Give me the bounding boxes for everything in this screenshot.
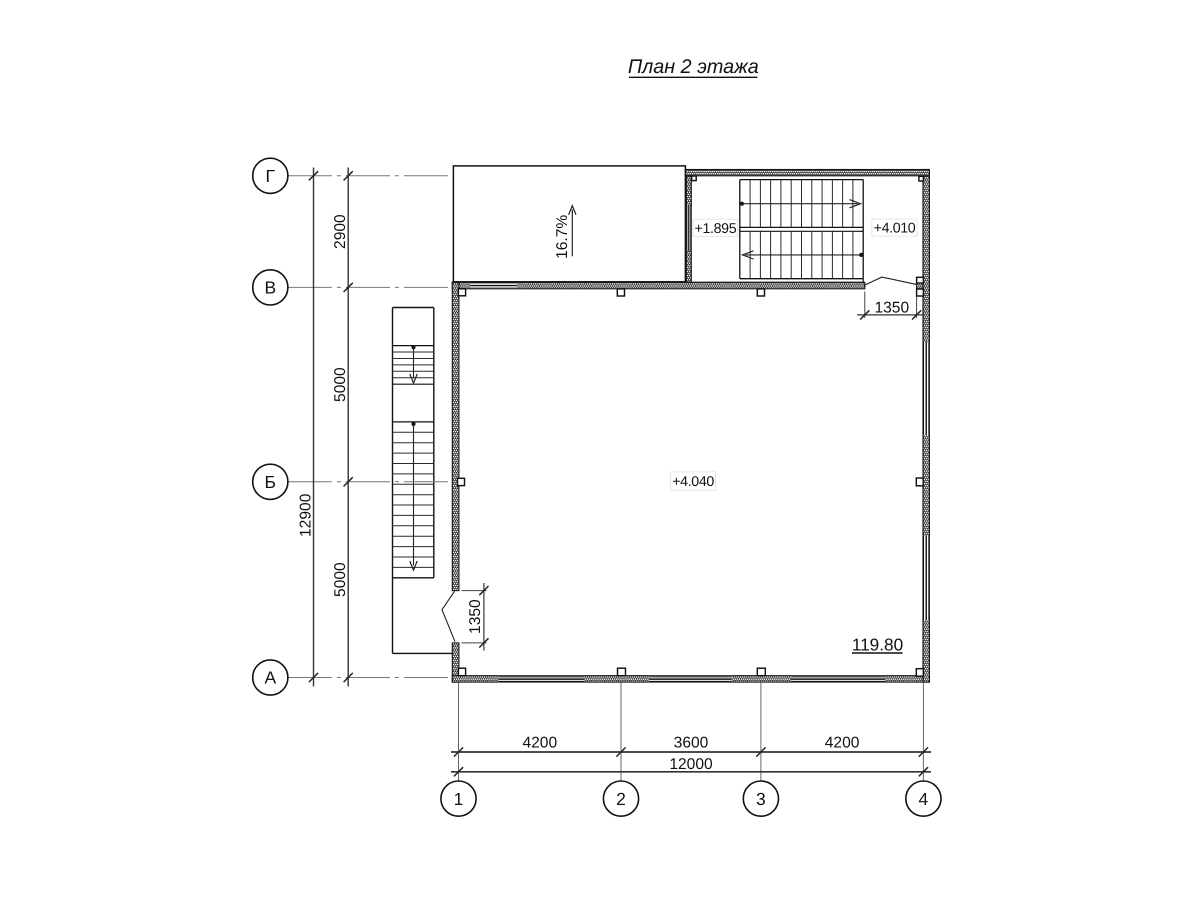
svg-text:Г: Г <box>266 166 276 186</box>
svg-text:16.7%: 16.7% <box>554 215 571 259</box>
svg-text:1350: 1350 <box>874 299 909 316</box>
svg-text:1350: 1350 <box>467 599 484 634</box>
svg-text:В: В <box>264 278 276 298</box>
svg-text:12900: 12900 <box>297 493 314 537</box>
svg-text:12000: 12000 <box>669 756 713 773</box>
svg-text:А: А <box>264 668 276 688</box>
svg-text:5000: 5000 <box>332 367 349 402</box>
svg-text:5000: 5000 <box>332 562 349 597</box>
svg-text:План 2 этажа: План 2 этажа <box>628 56 759 78</box>
svg-text:Б: Б <box>265 472 276 492</box>
svg-text:4: 4 <box>919 789 929 809</box>
svg-text:2900: 2900 <box>332 214 349 249</box>
svg-text:119.80: 119.80 <box>852 634 903 654</box>
svg-text:2: 2 <box>616 789 626 809</box>
svg-text:4200: 4200 <box>522 735 557 752</box>
svg-text:+4.010: +4.010 <box>874 221 916 237</box>
svg-text:3: 3 <box>756 789 766 809</box>
svg-text:4200: 4200 <box>825 735 860 752</box>
svg-text:3600: 3600 <box>674 735 709 752</box>
svg-text:1: 1 <box>454 789 464 809</box>
svg-text:+4.040: +4.040 <box>672 474 714 490</box>
svg-text:+1.895: +1.895 <box>695 221 737 237</box>
